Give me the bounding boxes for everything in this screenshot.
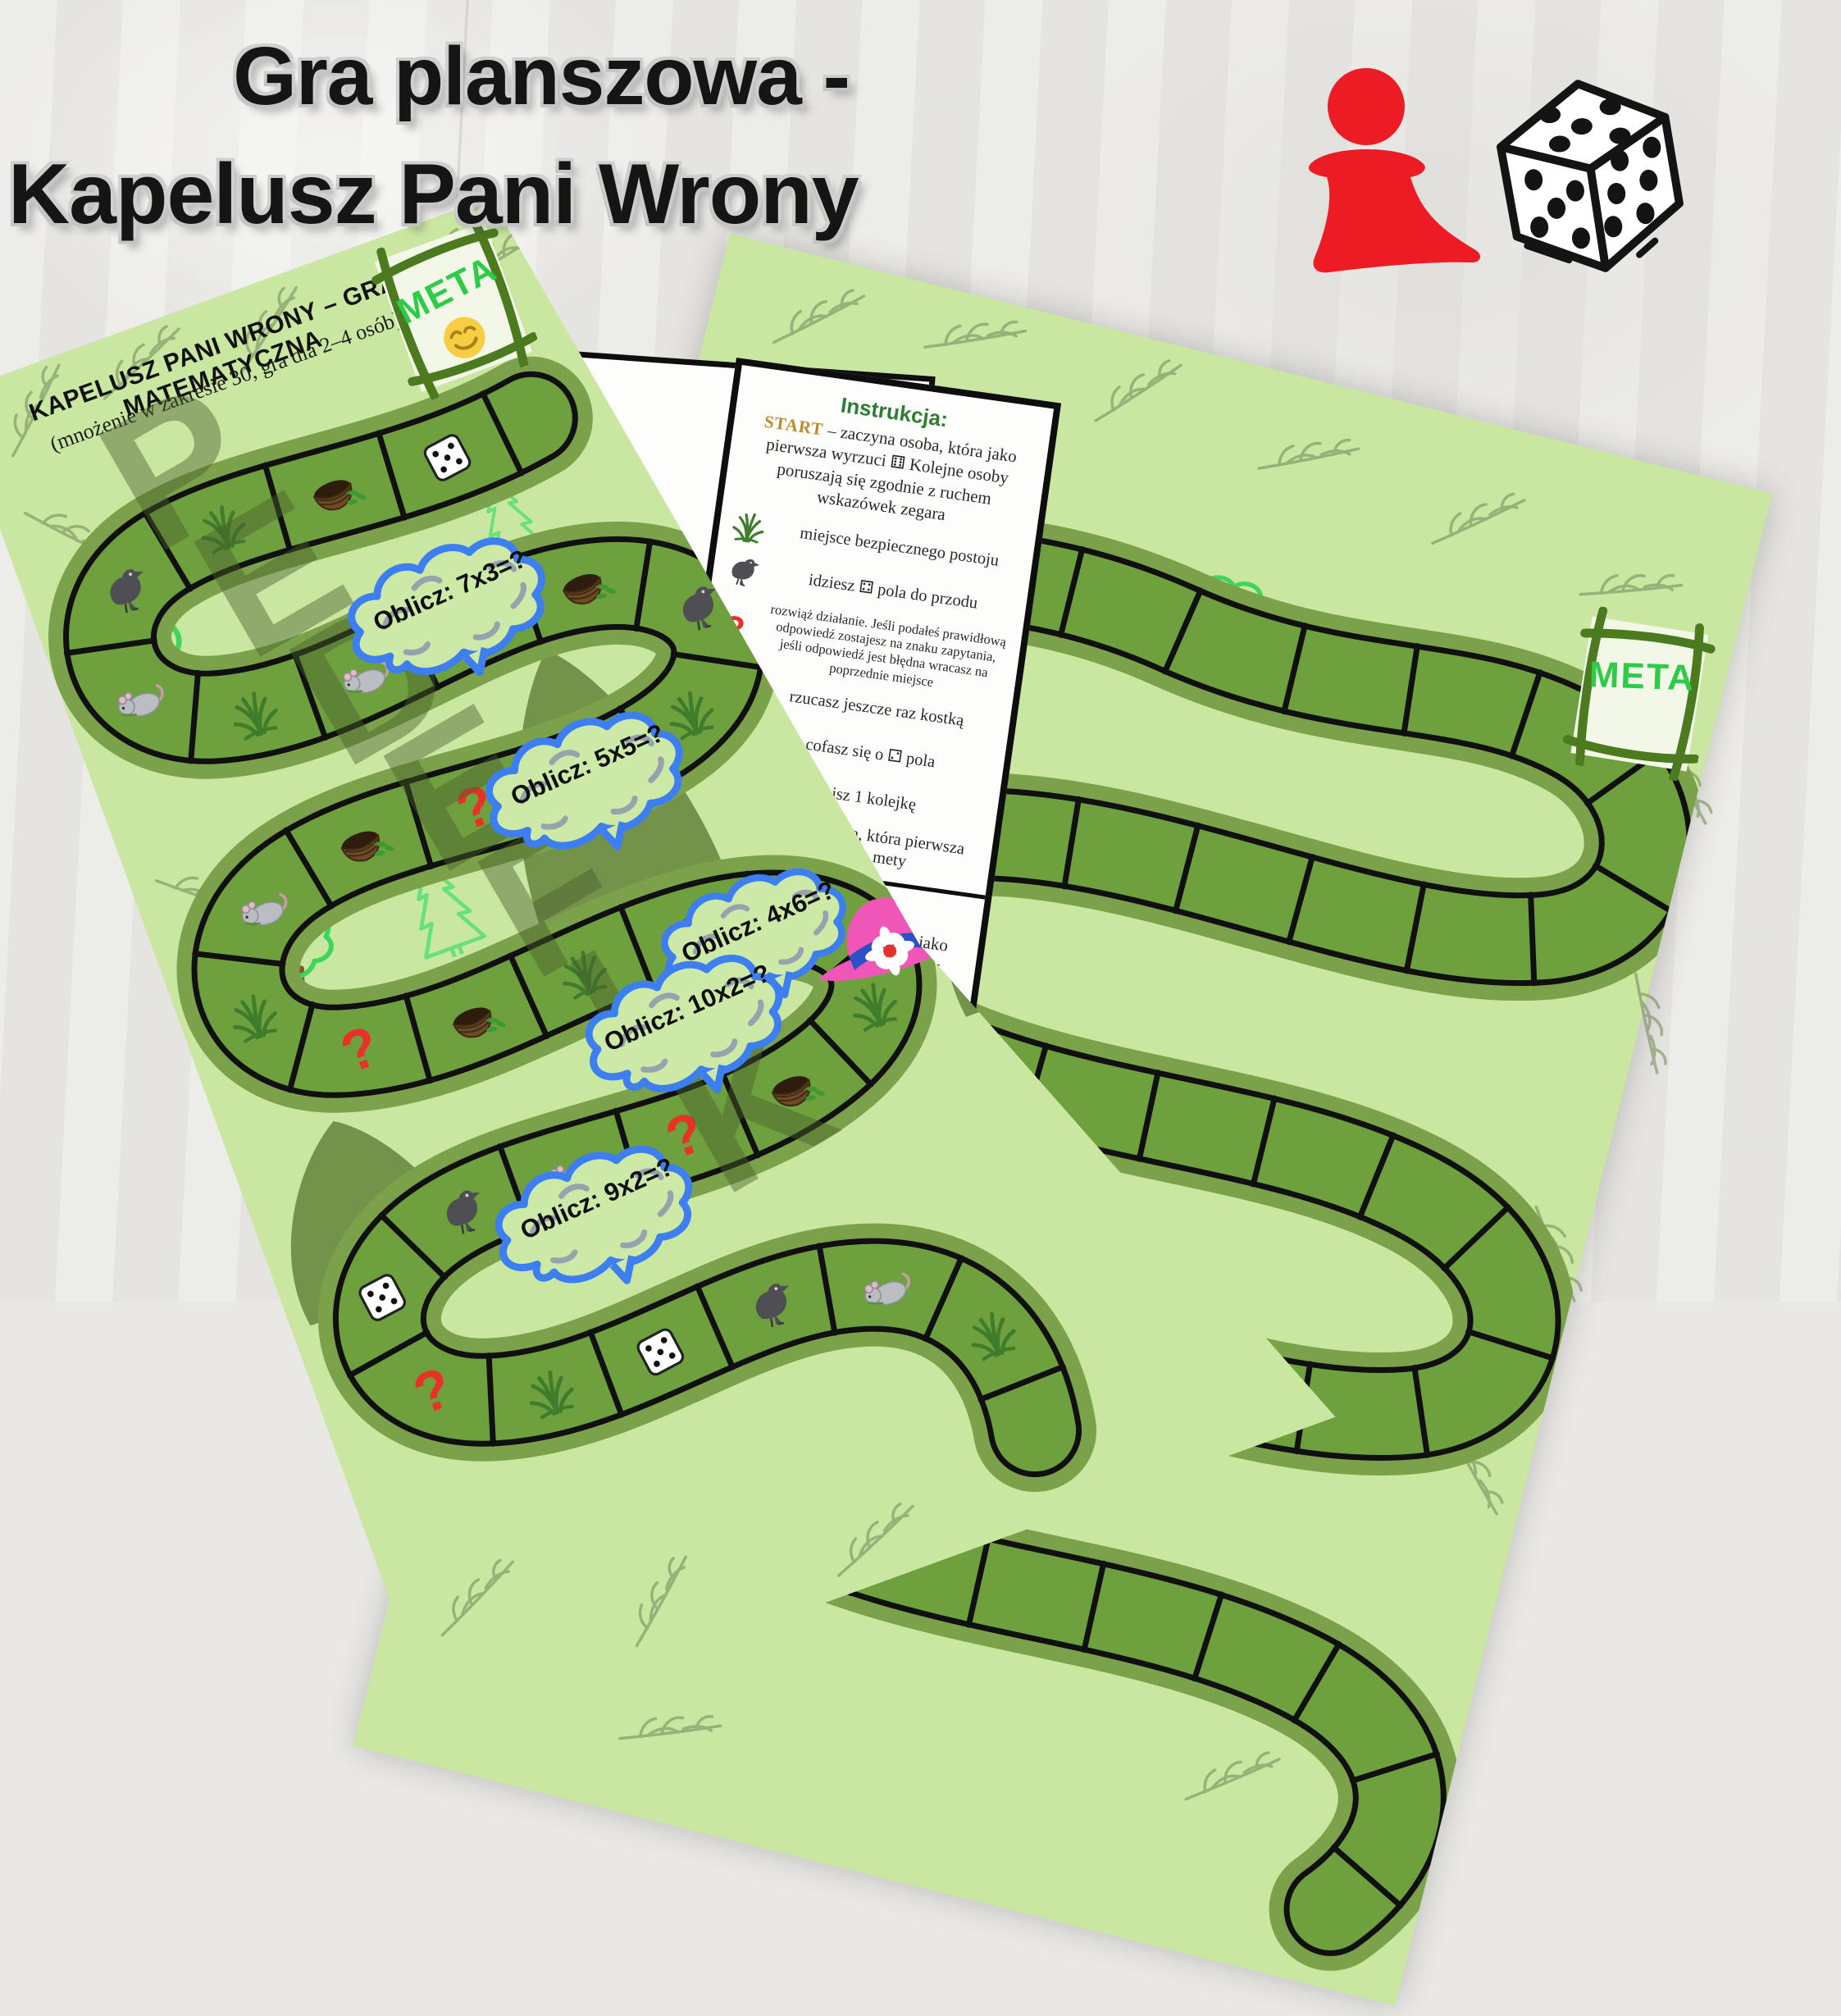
main-title-line2: Kapelusz Pani Wrony: [8, 146, 787, 244]
meta-finish-box: META: [1559, 604, 1720, 784]
dice-cube-icon: [1469, 65, 1699, 287]
main-title-line1: Gra planszowa -: [94, 30, 988, 124]
grass-icon: [727, 504, 770, 547]
meta-label: META: [1573, 654, 1712, 700]
red-pawn-icon: [1301, 66, 1485, 281]
crow-icon: [721, 550, 763, 592]
